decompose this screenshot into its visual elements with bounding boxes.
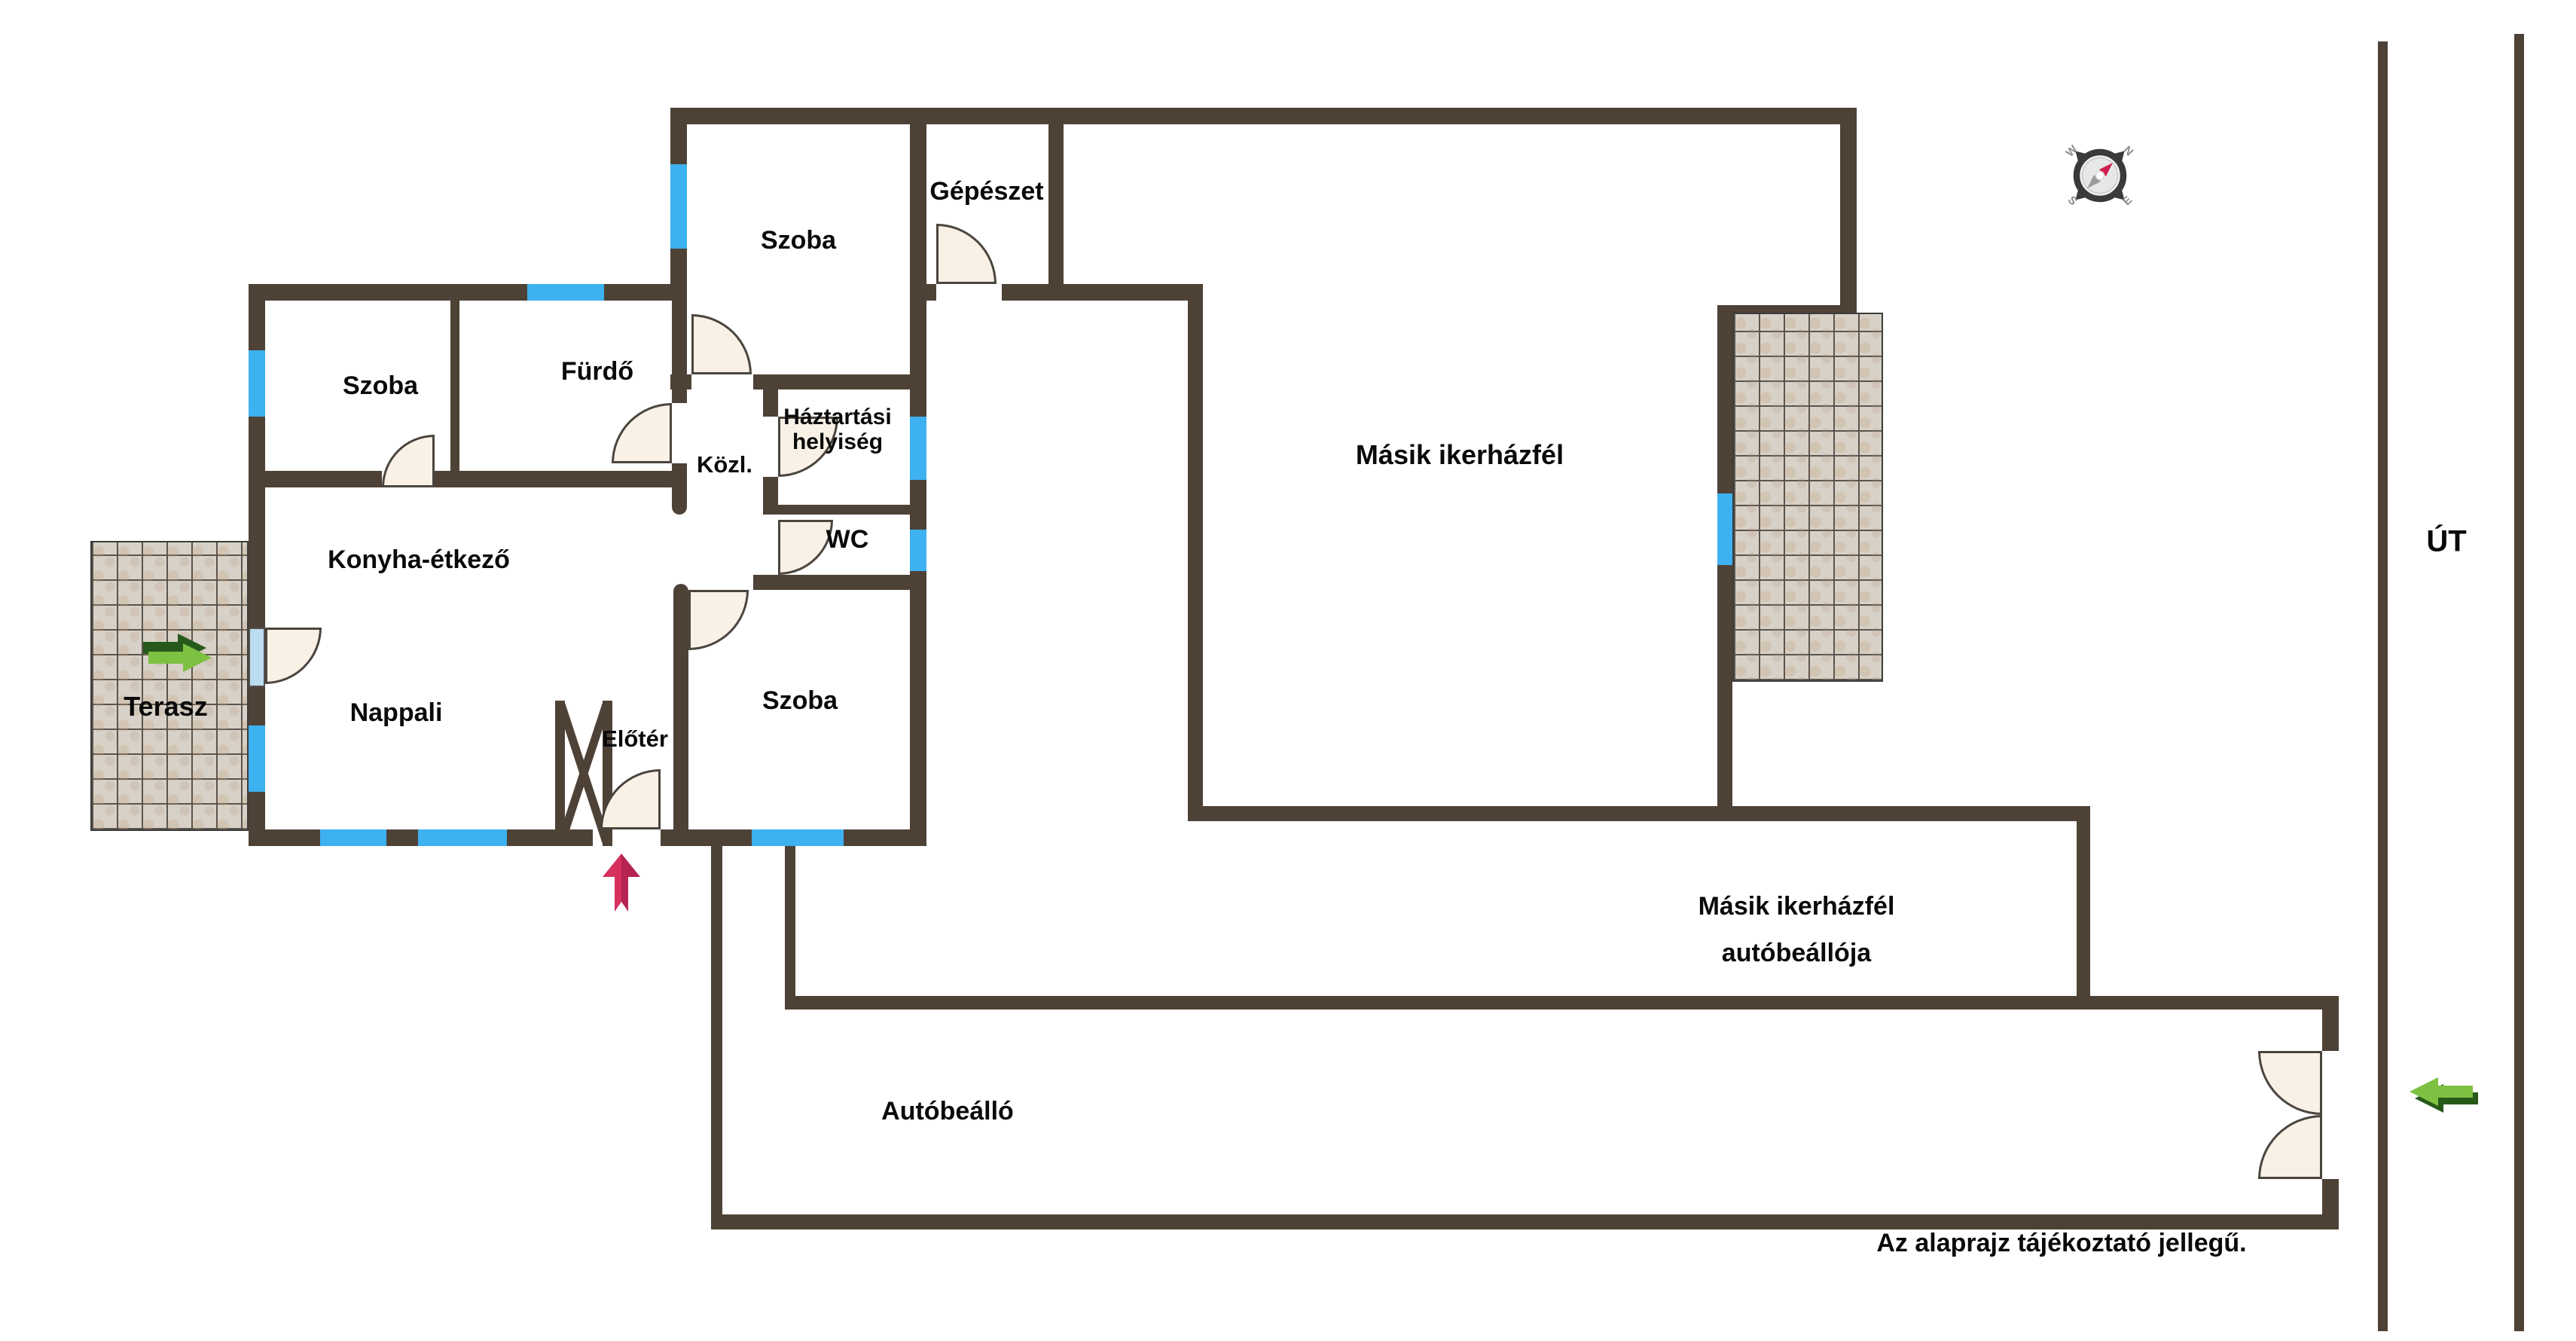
wall	[435, 471, 687, 487]
room-label-autobeallo: Autóbeálló	[881, 1089, 1014, 1135]
wall	[1188, 806, 2090, 821]
wall	[450, 301, 459, 471]
terrace-exit-arrow-icon	[143, 633, 222, 678]
wall	[2077, 806, 2090, 1010]
terrace-door-leaf	[249, 628, 265, 687]
window	[249, 350, 265, 417]
wall	[249, 284, 265, 628]
room-label-szoba-top: Szoba	[761, 218, 836, 264]
gate-lower-leaf-icon	[2258, 1115, 2322, 1179]
wall	[1002, 284, 1203, 301]
window	[320, 829, 386, 846]
wall	[673, 584, 688, 846]
road-line	[2514, 34, 2524, 1331]
room-label-kozl: Közl.	[697, 444, 752, 486]
door-wc-icon	[778, 520, 833, 575]
room-label-konyha: Konyha-étkező	[328, 537, 510, 584]
room-label-masik-carport: Másik ikerházfél autóbeállója	[1699, 884, 1895, 977]
road-label: ÚT	[2426, 515, 2466, 570]
road-entry-arrow-icon	[2407, 1076, 2486, 1121]
neighbor-terrace-tiles	[1732, 313, 1883, 682]
wall	[2090, 996, 2333, 1010]
wall	[753, 374, 926, 389]
room-label-nappali: Nappali	[350, 690, 443, 737]
room-label-terasz: Terasz	[124, 682, 207, 732]
wall	[910, 123, 926, 846]
disclaimer-text: Az alaprajz tájékoztató jellegű.	[1876, 1220, 2246, 1267]
gate-upper-leaf-icon	[2258, 1051, 2322, 1115]
window	[418, 829, 507, 846]
wall	[1840, 108, 1857, 311]
door-furdo-icon	[612, 403, 672, 463]
door-gepeszet-icon	[936, 224, 997, 284]
wall	[1048, 108, 1064, 301]
wall	[763, 374, 778, 417]
wall	[785, 846, 795, 1002]
wall	[711, 846, 722, 1230]
compass-icon: W N S E	[2062, 138, 2138, 213]
window	[910, 417, 926, 480]
wall	[670, 108, 1857, 124]
wall	[2322, 996, 2339, 1051]
door-terasz-icon	[265, 628, 322, 684]
room-label-wc: WC	[826, 517, 869, 564]
wall	[1188, 284, 1203, 821]
door-szoba-bottom-icon	[688, 590, 749, 650]
wall	[672, 463, 687, 515]
room-label-haztartasi: Háztartási helyiség	[783, 405, 891, 454]
window	[752, 829, 844, 846]
road-line	[2378, 41, 2388, 1331]
room-label-furdo: Fürdő	[561, 349, 633, 396]
door-szoba-top-icon	[691, 314, 752, 374]
room-label-masik-ikerhazfel: Másik ikerházfél	[1356, 430, 1564, 480]
window	[1717, 493, 1732, 565]
window	[910, 530, 926, 571]
window	[670, 164, 687, 249]
floor-plan: W N S E Szoba Gépészet Szoba Fürdő Közl.…	[0, 0, 2576, 1341]
wall	[763, 505, 910, 515]
window	[527, 284, 604, 301]
room-label-gepeszet: Gépészet	[929, 169, 1043, 215]
room-label-szoba-left: Szoba	[343, 363, 418, 410]
compass-east-label: E	[2120, 194, 2135, 208]
window	[249, 725, 265, 792]
wall	[249, 471, 382, 487]
wall	[672, 301, 687, 403]
door-szoba-left-icon	[382, 435, 435, 487]
wall	[249, 284, 679, 301]
entrance-arrow-icon	[603, 854, 640, 912]
room-label-eloter: Előtér	[602, 718, 668, 760]
wall	[753, 575, 926, 590]
room-label-szoba-bottom: Szoba	[762, 678, 838, 725]
compass-south-label: S	[2065, 194, 2080, 208]
wall	[785, 996, 2090, 1010]
wall	[924, 284, 936, 301]
